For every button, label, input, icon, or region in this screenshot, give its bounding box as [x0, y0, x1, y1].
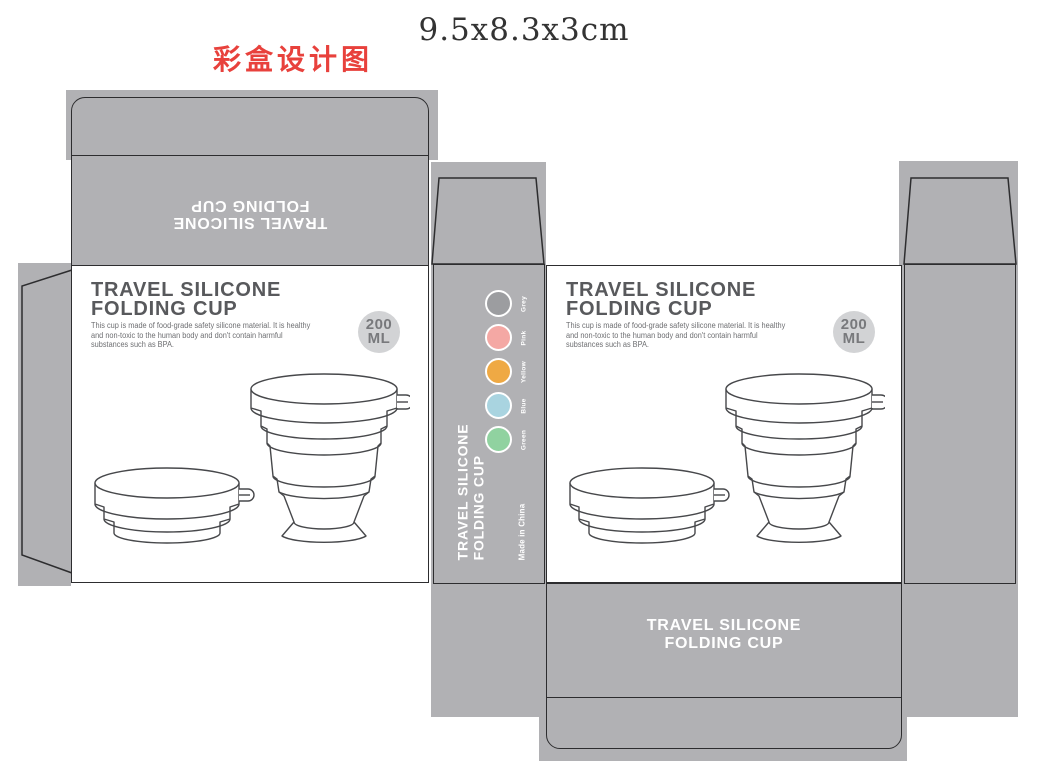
bottom-panel: TRAVEL SILICONE FOLDING CUP [546, 583, 902, 698]
front-product-description: This cup is made of food-grade safety si… [91, 321, 310, 350]
top-panel-title-line1: TRAVEL SILICONE [173, 214, 328, 231]
description-line: substances such as BPA. [91, 340, 310, 350]
top-panel: TRAVEL SILICONE FOLDING CUP [71, 155, 429, 266]
bottom-panel-title-line1: TRAVEL SILICONE [547, 617, 901, 635]
packaging-dieline-canvas: 9.5x8.3x3cm 彩盒设计图 TRAVEL SILICONE FOLDIN… [0, 0, 1048, 775]
collapsed-cup-illustration [88, 462, 256, 558]
swatch-green [485, 426, 512, 453]
spine-panel: TRAVEL SILICONE FOLDING CUP Grey Pink Ye… [433, 264, 545, 584]
back-product-title-line2: FOLDING CUP [566, 300, 756, 319]
back-product-description: This cup is made of food-grade safety si… [566, 321, 785, 350]
bottom-panel-title: TRAVEL SILICONE FOLDING CUP [547, 617, 901, 652]
top-panel-title-line2: FOLDING CUP [173, 197, 328, 214]
expanded-cup-illustration [238, 364, 410, 560]
expanded-cup-illustration [713, 364, 885, 560]
swatch-pink [485, 324, 512, 351]
left-dust-flap [16, 262, 74, 578]
capacity-badge: 200 ML [833, 311, 875, 353]
capacity-unit: ML [368, 332, 391, 346]
spine-title: TRAVEL SILICONE FOLDING CUP [456, 424, 487, 561]
bottom-tuck-flap [546, 697, 902, 749]
capacity-badge: 200 ML [358, 311, 400, 353]
front-product-title-line1: TRAVEL SILICONE [91, 281, 281, 300]
bottom-panel-title-line2: FOLDING CUP [547, 635, 901, 653]
top-panel-title: TRAVEL SILICONE FOLDING CUP [173, 197, 328, 231]
glue-flap-top [899, 171, 1021, 267]
spine-top-flap [427, 171, 549, 267]
front-product-title-line2: FOLDING CUP [91, 300, 281, 319]
description-line: This cup is made of food-grade safety si… [566, 321, 785, 331]
made-in-origin-text: Made in China [518, 504, 527, 561]
design-label-cn: 彩盒设计图 [213, 38, 373, 78]
front-product-title: TRAVEL SILICONE FOLDING CUP [91, 281, 281, 318]
box-dimensions-title: 9.5x8.3x3cm [0, 12, 1048, 48]
swatch-label-pink: Pink [521, 331, 528, 346]
front-panel: TRAVEL SILICONE FOLDING CUP This cup is … [71, 265, 429, 583]
spine-title-line1: TRAVEL SILICONE [456, 424, 472, 561]
capacity-unit: ML [843, 332, 866, 346]
description-line: substances such as BPA. [566, 340, 785, 350]
swatch-label-blue: Blue [521, 398, 528, 413]
glue-flap-panel [904, 264, 1016, 584]
swatch-label-green: Green [521, 430, 528, 450]
description-line: and non-toxic to the human body and don'… [566, 331, 785, 341]
swatch-label-yellow: Yellow [521, 361, 528, 383]
spine-title-line2: FOLDING CUP [471, 424, 487, 561]
swatch-grey [485, 290, 512, 317]
collapsed-cup-illustration [563, 462, 731, 558]
top-tuck-flap [71, 97, 429, 156]
description-line: This cup is made of food-grade safety si… [91, 321, 310, 331]
swatch-label-grey: Grey [521, 296, 528, 312]
back-product-title-line1: TRAVEL SILICONE [566, 281, 756, 300]
back-panel: TRAVEL SILICONE FOLDING CUP This cup is … [546, 265, 902, 583]
back-product-title: TRAVEL SILICONE FOLDING CUP [566, 281, 756, 318]
swatch-yellow [485, 358, 512, 385]
swatch-blue [485, 392, 512, 419]
description-line: and non-toxic to the human body and don'… [91, 331, 310, 341]
